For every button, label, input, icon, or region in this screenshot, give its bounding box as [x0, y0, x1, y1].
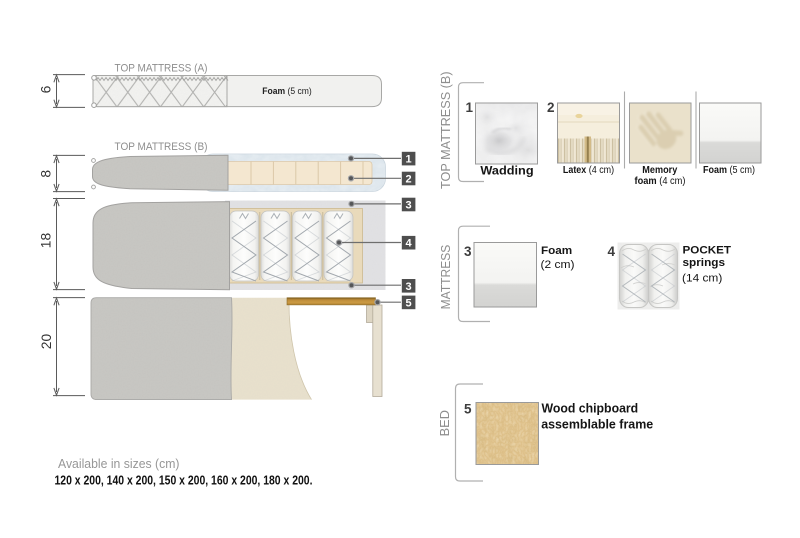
svg-text:1: 1 [465, 100, 473, 115]
svg-text:MATTRESS: MATTRESS [438, 245, 453, 310]
svg-text:Foam: Foam [541, 245, 572, 257]
svg-text:3: 3 [464, 244, 472, 259]
svg-text:4: 4 [406, 238, 413, 250]
svg-text:(14 cm): (14 cm) [682, 273, 722, 285]
svg-text:TOP MATTRESS (A): TOP MATTRESS (A) [115, 63, 208, 75]
svg-text:TOP MATTRESS (B): TOP MATTRESS (B) [438, 71, 453, 189]
svg-text:5: 5 [464, 401, 472, 416]
svg-text:POCKET: POCKET [683, 245, 732, 257]
svg-text:TOP MATTRESS (B): TOP MATTRESS (B) [115, 141, 208, 153]
svg-text:Wood chipboard: Wood chipboard [542, 401, 639, 416]
svg-text:20: 20 [39, 334, 54, 350]
svg-text:6: 6 [39, 85, 54, 93]
svg-text:18: 18 [39, 233, 54, 249]
svg-text:Foam (5 cm): Foam (5 cm) [703, 165, 755, 176]
svg-text:foam (4 cm): foam (4 cm) [635, 176, 686, 187]
svg-text:Wadding: Wadding [480, 165, 533, 178]
svg-text:120 x 200, 140 x 200, 150 x 20: 120 x 200, 140 x 200, 150 x 200, 160 x 2… [55, 474, 313, 488]
svg-text:Foam (5 cm): Foam (5 cm) [262, 86, 312, 96]
svg-text:8: 8 [39, 170, 54, 178]
svg-text:springs: springs [683, 257, 726, 269]
svg-text:BED: BED [437, 410, 452, 436]
svg-text:Latex (4 cm): Latex (4 cm) [563, 165, 614, 176]
svg-text:3: 3 [406, 200, 412, 212]
svg-text:2: 2 [406, 174, 412, 186]
svg-text:1: 1 [406, 154, 412, 166]
svg-text:5: 5 [406, 297, 412, 309]
svg-text:3: 3 [406, 281, 412, 293]
svg-text:2: 2 [547, 100, 555, 115]
svg-text:assemblable frame: assemblable frame [541, 416, 653, 431]
svg-text:(2 cm): (2 cm) [541, 259, 575, 271]
svg-text:Available in sizes (cm): Available in sizes (cm) [58, 457, 180, 471]
svg-text:Memory: Memory [642, 165, 678, 176]
svg-text:4: 4 [607, 244, 615, 259]
